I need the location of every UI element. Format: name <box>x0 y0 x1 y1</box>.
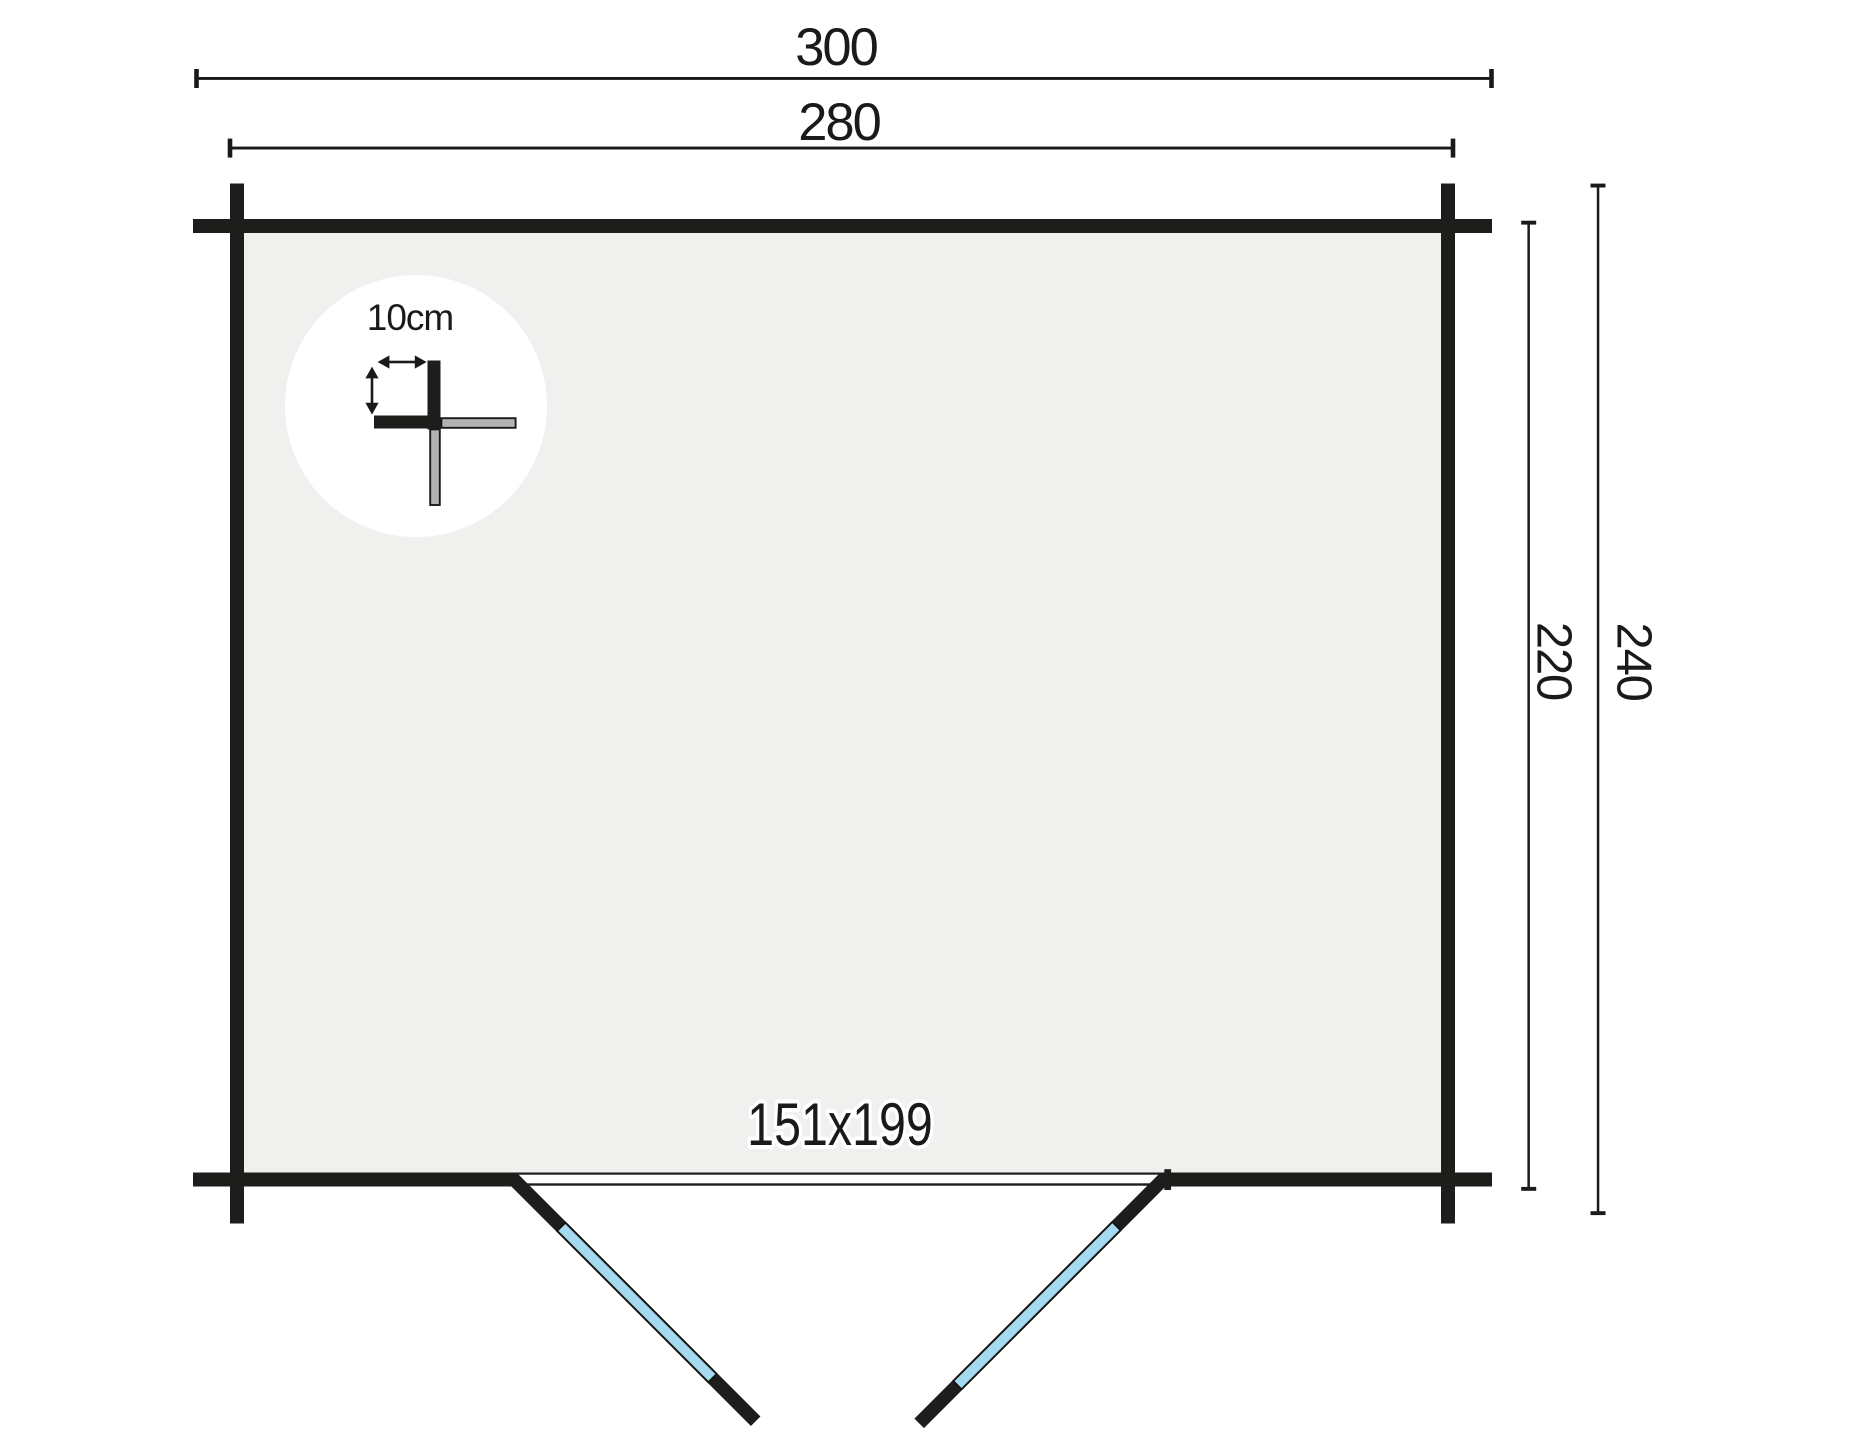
svg-text:240: 240 <box>1606 623 1660 701</box>
svg-text:10cm: 10cm <box>367 297 453 338</box>
svg-text:151x199: 151x199 <box>747 1090 933 1158</box>
svg-text:220: 220 <box>1527 622 1581 700</box>
svg-text:300: 300 <box>795 18 877 77</box>
svg-text:280: 280 <box>798 93 880 152</box>
